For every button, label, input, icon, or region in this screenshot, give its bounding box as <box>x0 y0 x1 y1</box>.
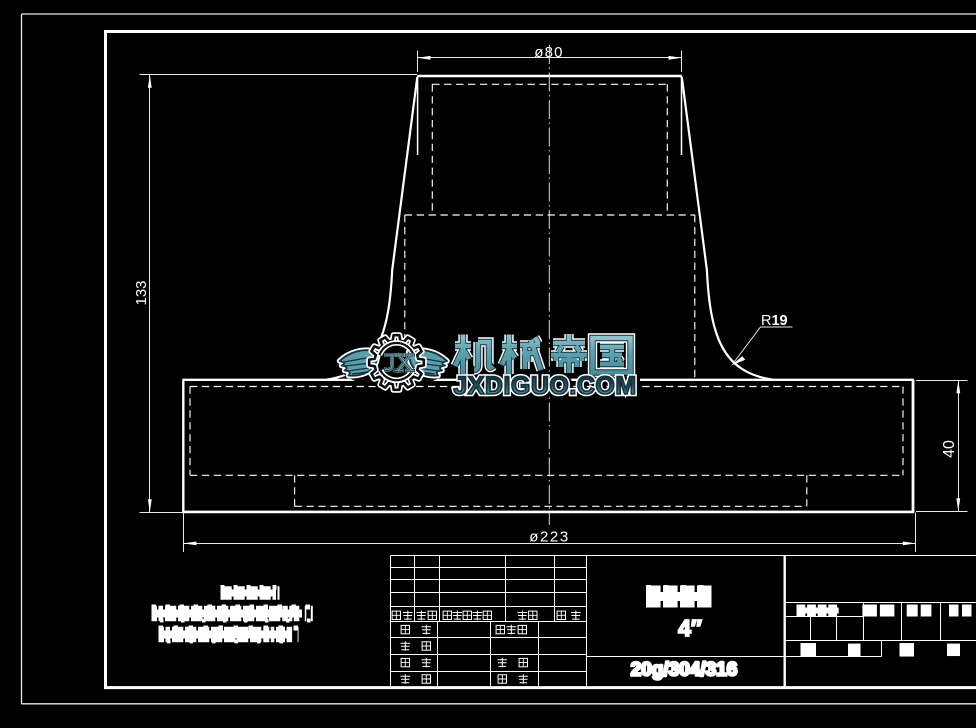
svg-text:40: 40 <box>941 440 958 458</box>
svg-text:133: 133 <box>133 280 150 305</box>
svg-text:ø80: ø80 <box>534 44 563 61</box>
svg-text:JXDIGUO.COM: JXDIGUO.COM <box>453 372 636 400</box>
svg-text:4″: 4″ <box>678 615 702 641</box>
svg-text:20g/304/316: 20g/304/316 <box>631 660 738 681</box>
svg-text:ø223: ø223 <box>529 529 570 546</box>
